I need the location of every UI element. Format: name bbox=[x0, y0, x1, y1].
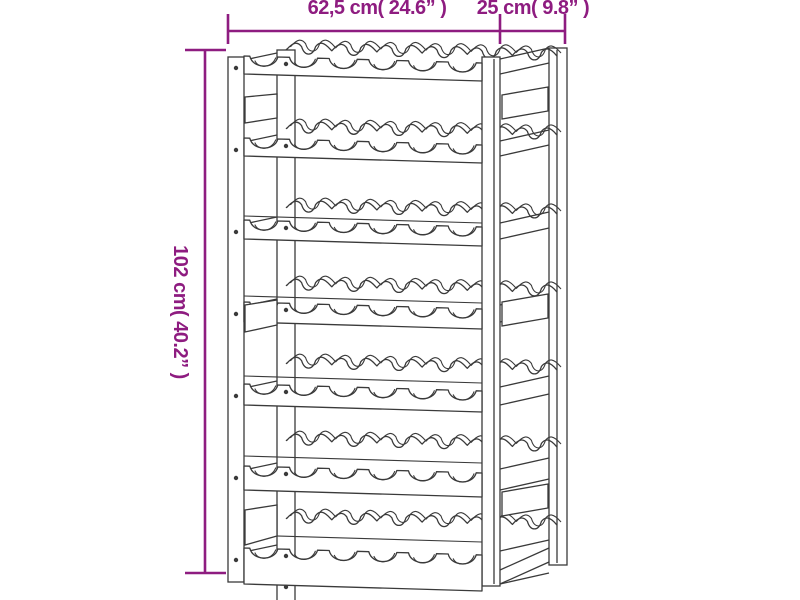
right-side-rail-bottom bbox=[500, 145, 549, 156]
right-side-rail-top bbox=[500, 212, 549, 223]
right-base-rail-top bbox=[500, 548, 549, 570]
right-side-support-block bbox=[502, 484, 548, 516]
screw-dot bbox=[234, 476, 238, 480]
height-dimension-label: 102 cm( 40.2” ) bbox=[169, 245, 191, 379]
right-side-rail-bottom bbox=[500, 63, 549, 74]
right-base-rail-bottom bbox=[500, 562, 549, 584]
screw-dot bbox=[234, 66, 238, 70]
screw-dot bbox=[284, 472, 288, 476]
screw-dot bbox=[234, 558, 238, 562]
screw-dot bbox=[284, 554, 288, 558]
left-side-support-block bbox=[245, 300, 277, 332]
back-rail-scallops-edge bbox=[290, 276, 561, 293]
left-side-support-block bbox=[245, 505, 277, 545]
right-side-rail-top bbox=[500, 540, 549, 551]
right-side-rail-bottom bbox=[500, 573, 549, 584]
left-side-support-block bbox=[245, 94, 277, 123]
right-side-support-block bbox=[502, 87, 548, 119]
right-side-rail-top bbox=[500, 376, 549, 387]
back-rail-scallops-edge bbox=[290, 198, 561, 215]
screw-dot bbox=[284, 585, 288, 589]
wine-rack-drawing bbox=[228, 40, 567, 600]
wine-rack-dimension-diagram: 62,5 cm( 24.6” ) 25 cm( 9.8” ) 102 cm( 4… bbox=[0, 0, 800, 600]
front-rail-scallops bbox=[244, 548, 482, 591]
back-left-post bbox=[277, 50, 295, 600]
right-side-rail-bottom bbox=[500, 228, 549, 239]
screw-dot bbox=[284, 226, 288, 230]
screw-dot bbox=[284, 144, 288, 148]
screw-dot bbox=[284, 62, 288, 66]
right-side-rail-top bbox=[500, 458, 549, 469]
screw-dot bbox=[234, 148, 238, 152]
screw-dot bbox=[234, 230, 238, 234]
right-side-rail-bottom bbox=[500, 394, 549, 405]
screw-dot bbox=[284, 390, 288, 394]
diagram-canvas: 62,5 cm( 24.6” ) 25 cm( 9.8” ) 102 cm( 4… bbox=[0, 0, 800, 600]
right-side-support-block bbox=[502, 294, 548, 326]
screw-dot bbox=[284, 308, 288, 312]
screw-dot bbox=[234, 312, 238, 316]
back-rail-scallops-edge bbox=[290, 119, 561, 136]
front-left-post bbox=[228, 57, 244, 582]
screw-dot bbox=[234, 394, 238, 398]
depth-dimension-label: 25 cm( 9.8” ) bbox=[477, 0, 589, 19]
back-rail-scallops-edge bbox=[290, 431, 561, 448]
front-right-post bbox=[482, 57, 500, 586]
width-dimension-label: 62,5 cm( 24.6” ) bbox=[308, 0, 447, 19]
back-rail-scallops-edge bbox=[290, 354, 561, 371]
